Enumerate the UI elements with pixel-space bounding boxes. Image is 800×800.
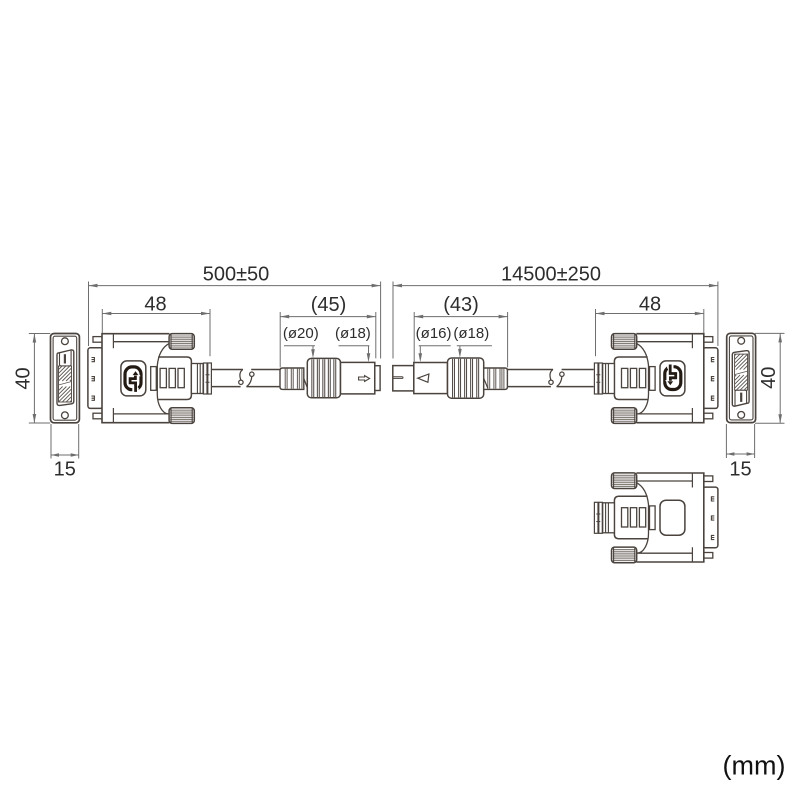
svg-text:(ø20): (ø20) xyxy=(283,325,319,342)
svg-text:15: 15 xyxy=(729,458,751,480)
svg-text:15: 15 xyxy=(54,458,76,480)
svg-text:40: 40 xyxy=(758,367,780,389)
svg-text:(43): (43) xyxy=(443,294,479,316)
svg-text:40: 40 xyxy=(13,367,35,389)
svg-text:48: 48 xyxy=(639,293,661,315)
svg-text:(ø18): (ø18) xyxy=(335,325,371,342)
svg-text:(ø18): (ø18) xyxy=(453,325,489,342)
svg-text:48: 48 xyxy=(144,293,166,315)
svg-text:500±50: 500±50 xyxy=(203,264,270,286)
svg-text:(45): (45) xyxy=(311,294,347,316)
svg-text:14500±250: 14500±250 xyxy=(501,264,601,286)
svg-text:(mm): (mm) xyxy=(723,751,786,781)
svg-text:(ø16): (ø16) xyxy=(416,325,452,342)
